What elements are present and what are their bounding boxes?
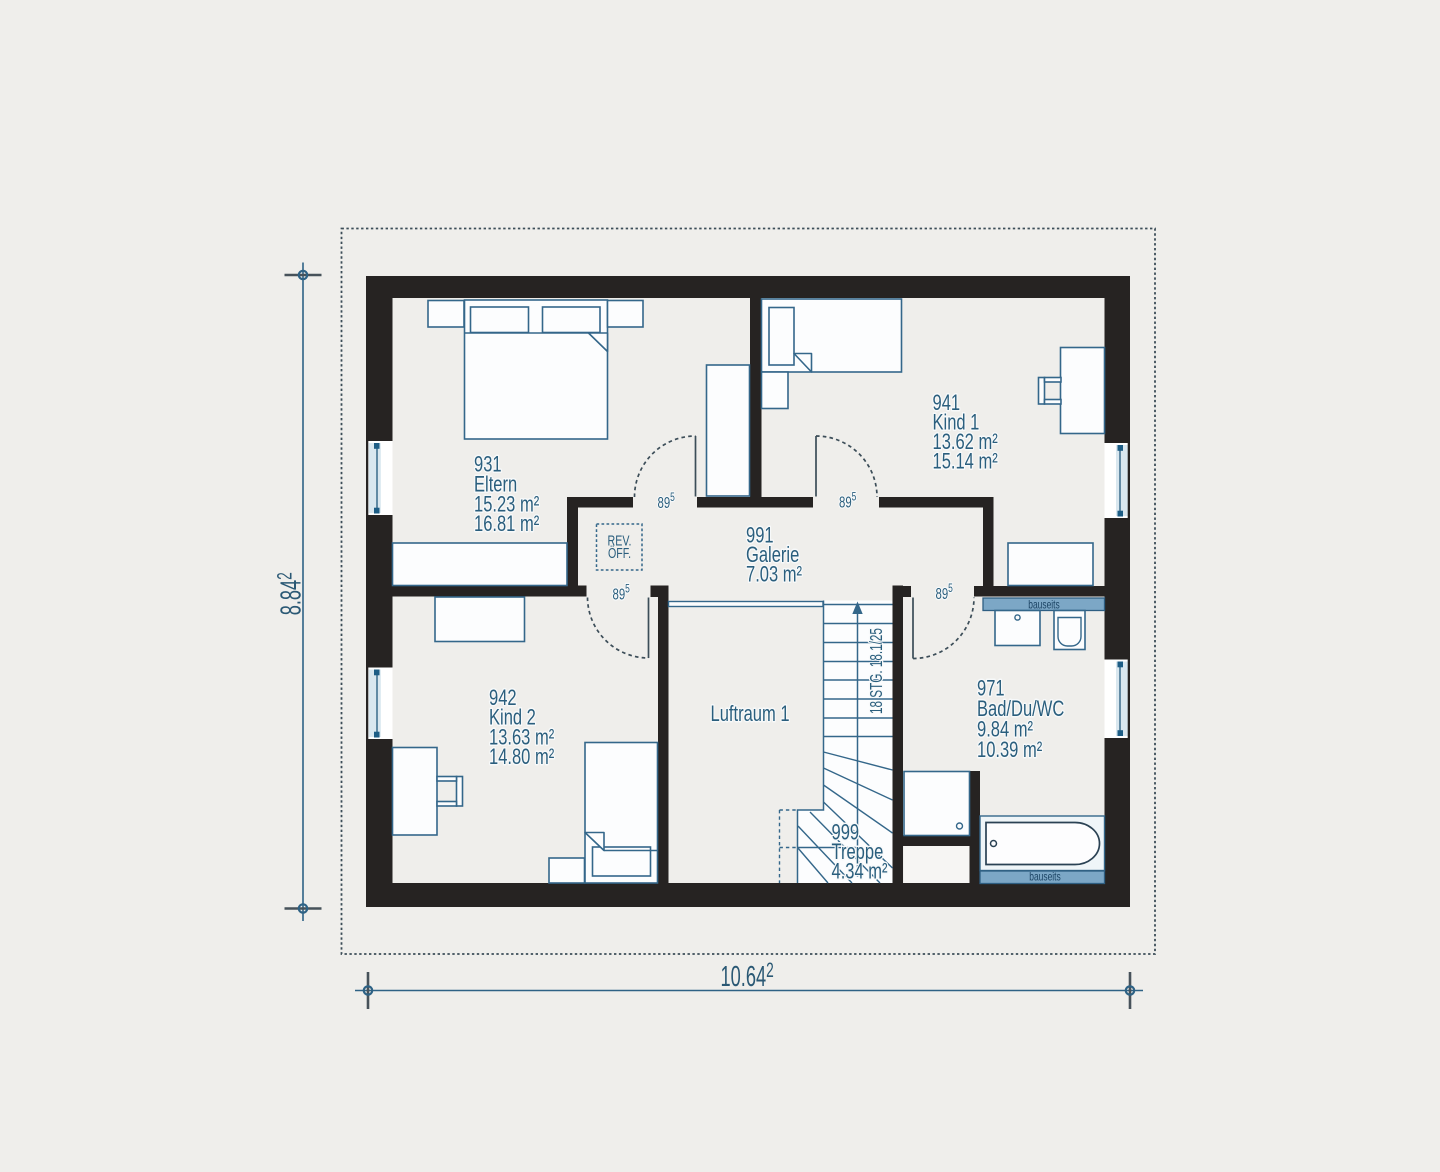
svg-text:ÖFF.: ÖFF. bbox=[608, 544, 631, 561]
svg-text:15.14 m²: 15.14 m² bbox=[933, 449, 999, 474]
svg-text:Luftraum 1: Luftraum 1 bbox=[711, 702, 790, 727]
svg-text:7.03 m²: 7.03 m² bbox=[746, 562, 802, 587]
svg-text:10.39 m²: 10.39 m² bbox=[977, 738, 1043, 763]
svg-text:10.642: 10.642 bbox=[721, 958, 774, 993]
svg-text:4.34 m²: 4.34 m² bbox=[832, 859, 888, 884]
svg-text:18 STG. 18.1/25: 18 STG. 18.1/25 bbox=[868, 628, 887, 714]
svg-text:14.80 m²: 14.80 m² bbox=[489, 745, 555, 770]
svg-text:16.81 m²: 16.81 m² bbox=[474, 512, 540, 537]
svg-text:bauseits: bauseits bbox=[1029, 871, 1060, 884]
